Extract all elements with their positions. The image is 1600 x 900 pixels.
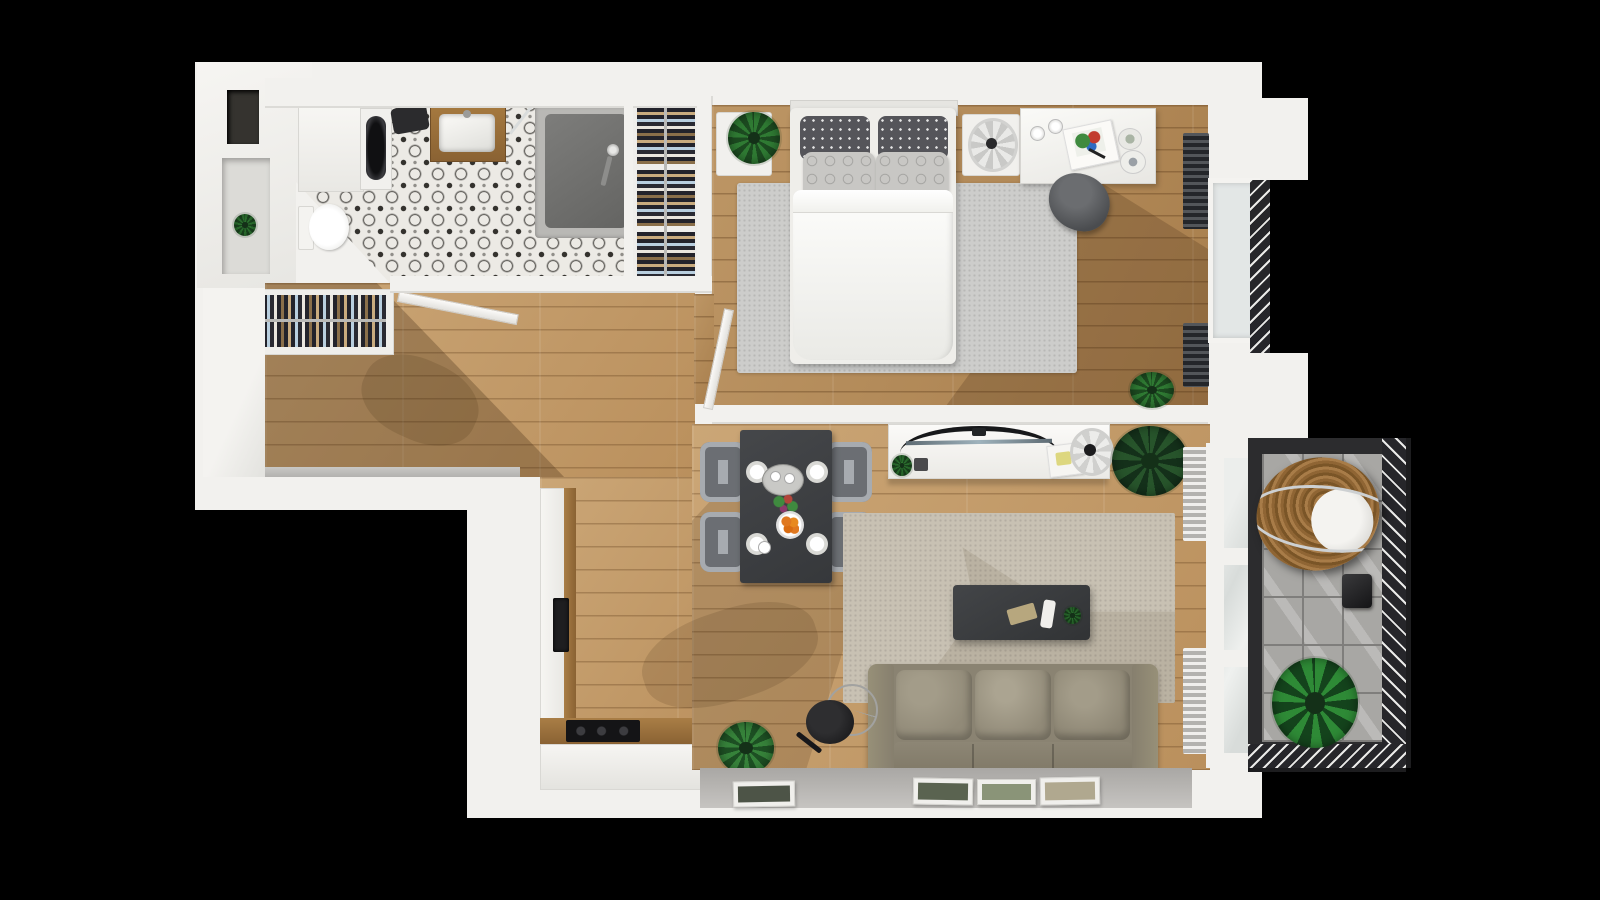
balcony-plant xyxy=(1272,658,1358,748)
small-cup xyxy=(758,541,771,554)
picture-frame-3 xyxy=(977,779,1036,805)
egg-chair-frame-bar xyxy=(1245,478,1394,560)
wall-top xyxy=(265,78,1252,108)
shower-floor xyxy=(545,114,627,228)
tray-cup-1 xyxy=(770,471,781,482)
floor-lamp-head xyxy=(806,700,854,744)
floorplan-scene xyxy=(0,0,1600,900)
sofa xyxy=(868,664,1158,780)
kitchen-built-in-appliance xyxy=(553,598,569,652)
toilet-bowl xyxy=(309,204,349,250)
entry-wardrobe-rail xyxy=(256,319,386,322)
washbasin-faucet-icon xyxy=(463,110,471,118)
fruit-oranges xyxy=(781,516,799,534)
wall-bedroom-east-lower xyxy=(1208,331,1252,443)
desk-cup-2 xyxy=(1048,119,1063,134)
picture-frame-2-art xyxy=(918,783,968,801)
kitchen-side-plant xyxy=(718,722,774,774)
picture-frame-3-art xyxy=(982,784,1031,800)
sofa-arm-right xyxy=(1132,664,1158,780)
dinner-plate-4 xyxy=(806,533,828,555)
juliet-wall-stub-top xyxy=(1250,98,1308,180)
wardrobe-rail xyxy=(664,108,667,288)
kitchen-counter-south xyxy=(540,744,714,790)
bedroom-radiator-lower xyxy=(1183,323,1209,387)
nightstand-plant xyxy=(728,112,780,164)
console-plant xyxy=(892,455,912,476)
bedroom-floor-plant xyxy=(1130,372,1174,408)
dining-chair-top-right xyxy=(826,442,872,502)
desk-plate-2 xyxy=(1120,150,1146,174)
living-large-plant xyxy=(1112,426,1188,496)
sofa-back-cushion-2 xyxy=(975,670,1051,740)
picture-frame-1 xyxy=(733,780,795,807)
wall-bedroom-living-divider xyxy=(712,402,1210,424)
wall-bathroom-hall xyxy=(390,276,712,293)
sofa-back-cushion-3 xyxy=(1054,670,1130,740)
shaft-dark-niche xyxy=(227,90,259,144)
picture-frame-1-art xyxy=(738,786,790,803)
washbasin-sink xyxy=(439,114,495,152)
tv-stand xyxy=(972,428,986,436)
tray-cup-2 xyxy=(784,473,795,484)
dinner-plate-2 xyxy=(806,461,828,483)
picture-frame-4-art xyxy=(1045,782,1095,801)
sofa-back-cushion-1 xyxy=(896,670,972,740)
washing-machine-door xyxy=(366,116,386,180)
picture-frame-4 xyxy=(1040,776,1100,805)
balcony-railing-right xyxy=(1382,438,1411,768)
wall-living-se-corner xyxy=(1206,768,1262,810)
balcony-door-frame xyxy=(1206,443,1224,768)
wall-shower-closet-divider xyxy=(624,104,633,292)
desk-plate-1 xyxy=(1118,128,1142,150)
balcony-railing-bottom xyxy=(1248,744,1406,772)
balcony xyxy=(1248,438,1406,768)
console-fan-hub xyxy=(1084,444,1096,456)
cooktop xyxy=(566,720,640,742)
bed-duvet-fold xyxy=(793,190,953,213)
bed-duvet xyxy=(793,190,953,360)
shower-head-icon xyxy=(607,144,619,156)
bedroom-radiator-upper xyxy=(1183,133,1209,229)
balcony-lantern xyxy=(1342,574,1372,608)
juliet-balcony-railing xyxy=(1250,180,1270,353)
shaft-plant xyxy=(234,214,256,236)
bathroom-cabinet xyxy=(298,106,364,192)
juliet-wall-stub-bottom xyxy=(1250,353,1308,443)
table-fan-hub xyxy=(986,138,997,149)
wall-kitchen-west xyxy=(467,477,542,818)
desk-cup-1 xyxy=(1030,126,1045,141)
console-box xyxy=(914,458,928,471)
coffee-table-plant xyxy=(1064,607,1081,624)
picture-frame-2 xyxy=(913,777,973,805)
wall-bedroom-east-upper xyxy=(1208,96,1252,180)
